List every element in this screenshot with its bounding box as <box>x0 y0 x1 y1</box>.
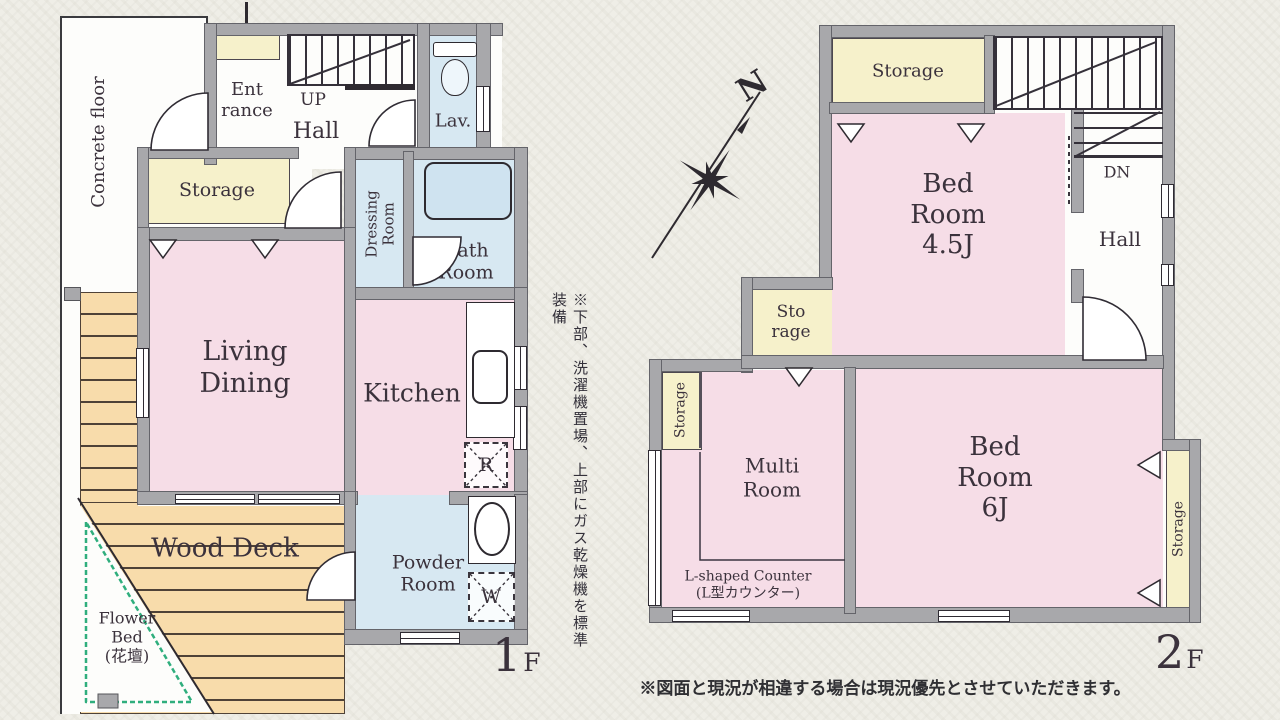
dn-label: DN <box>1104 164 1131 183</box>
storage-left-label: Storage <box>673 382 688 438</box>
wall <box>830 103 994 113</box>
stairs-down <box>993 36 1163 110</box>
toilet-tank-icon <box>433 42 477 57</box>
window <box>513 346 527 390</box>
window <box>938 610 1010 622</box>
powder-sink-icon <box>474 502 510 556</box>
wall <box>404 152 413 295</box>
wall <box>138 148 148 233</box>
bathtub-icon <box>424 162 512 220</box>
storage-1f-label: Storage <box>179 179 255 201</box>
floor-number: 2 <box>1155 625 1184 679</box>
kitchen-sink-icon <box>472 350 508 404</box>
entrance-porch <box>216 34 280 60</box>
side-note-1f: ※下部、洗濯機置場、上部にガス乾燥機を標準装備 <box>549 292 591 662</box>
stairs-down-turn <box>1074 112 1163 158</box>
wall <box>699 372 702 448</box>
powder-room-label: Powder Room <box>392 552 464 597</box>
lav-label: Lav. <box>435 110 471 131</box>
wall <box>1163 26 1174 450</box>
wall <box>1190 440 1200 622</box>
multi-room-label: Multi Room <box>743 454 801 501</box>
wall <box>742 356 1163 368</box>
wall <box>345 288 527 299</box>
window <box>513 406 527 450</box>
bath-room-label: Bath Room <box>438 240 493 285</box>
entrance-label: Ent rance <box>221 79 273 121</box>
counter-label: L-shaped Counter (L型カウンター) <box>684 568 811 601</box>
wall <box>138 228 350 240</box>
wall <box>205 24 216 164</box>
window <box>175 494 255 504</box>
storage-small-label: Sto rage <box>771 302 810 342</box>
toilet-bowl-icon <box>441 59 469 96</box>
wall <box>742 278 832 289</box>
storage-right-label: Storage <box>1171 501 1186 557</box>
window <box>136 348 149 418</box>
wood-deck-side-strip <box>80 292 138 505</box>
floor-suffix: F <box>523 648 540 677</box>
floor-label-2f: 2F <box>1155 625 1204 679</box>
kitchen-label: Kitchen <box>363 378 461 408</box>
wall <box>345 228 355 504</box>
wall <box>345 148 527 159</box>
wall <box>138 148 298 158</box>
window <box>1161 264 1174 286</box>
wall <box>650 360 752 371</box>
window <box>400 632 460 644</box>
fridge-label: R <box>479 454 493 476</box>
up-label: UP <box>300 90 326 110</box>
window <box>648 450 661 606</box>
floor-number: 1 <box>492 628 521 682</box>
wood-deck-label: Wood Deck <box>151 534 299 565</box>
concrete-floor-label: Concrete floor <box>89 62 109 222</box>
dressing-room-label: Dressing Room <box>364 190 397 258</box>
bedroom-45-label: Bed Room 4.5J <box>910 169 986 261</box>
window <box>672 610 750 622</box>
compass-icon: N <box>652 62 775 258</box>
north-label: N <box>730 62 775 110</box>
stairs-up <box>287 34 415 86</box>
flower-bed-label: Flower Bed (花壇) <box>99 610 156 667</box>
bedroom-6-label: Bed Room 6J <box>957 432 1033 524</box>
wall <box>515 288 527 505</box>
bottom-note: ※図面と現況が相違する場合は現況優先とさせていただきます。 <box>639 679 1130 699</box>
wall <box>1072 270 1083 302</box>
hall-2f-label: Hall <box>1099 228 1141 252</box>
floor-label-1f: 1F <box>492 628 541 682</box>
storage-top-label: Storage <box>872 60 944 81</box>
gate-mark <box>245 2 248 26</box>
window <box>258 494 340 504</box>
floorplan-page: Concrete floor Ent rance UP Hall Lav. St… <box>0 0 1280 720</box>
window <box>476 86 490 132</box>
living-dining-label: Living Dining <box>200 336 291 400</box>
hall-1f-label: Hall <box>293 119 339 145</box>
wall <box>515 148 527 298</box>
wall <box>845 368 855 613</box>
washer-label: W <box>481 586 501 608</box>
floor-suffix: F <box>1186 645 1203 674</box>
wall <box>418 24 429 159</box>
wall <box>345 492 355 642</box>
wall <box>515 495 527 642</box>
lot-strip <box>62 300 80 714</box>
wall <box>820 26 831 288</box>
deck-post <box>64 287 81 301</box>
window <box>1161 184 1174 218</box>
